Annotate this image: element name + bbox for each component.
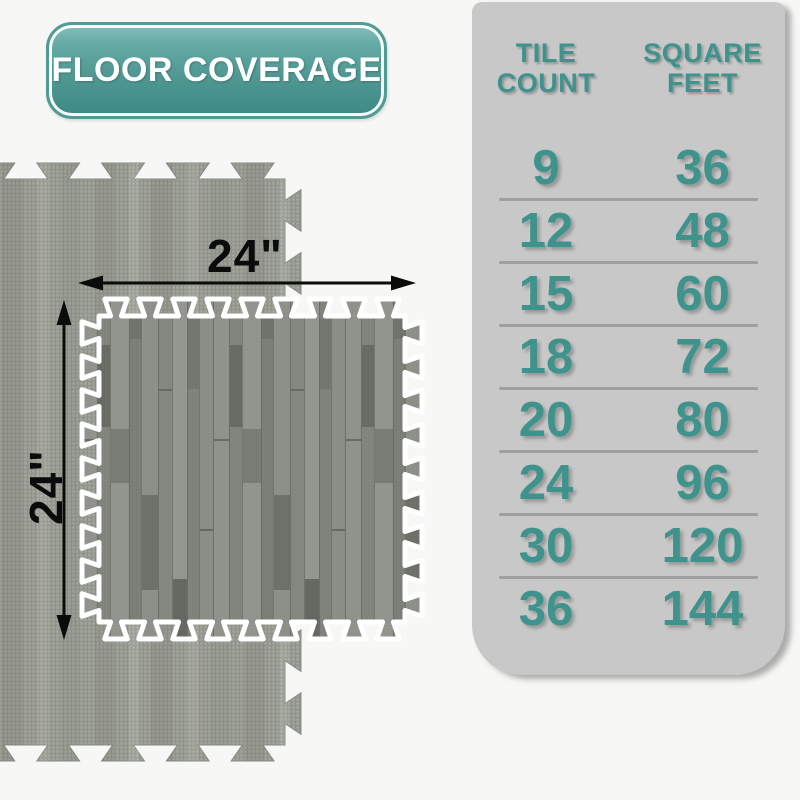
- width-label: 24": [175, 231, 315, 281]
- square-feet-cell: 72: [620, 329, 785, 385]
- tile-count-cell: 30: [472, 518, 620, 574]
- header-tile-count: TILE COUNT: [472, 38, 620, 98]
- floor-coverage-badge: FLOOR COVERAGE: [46, 22, 387, 119]
- square-feet-cell: 80: [620, 392, 785, 448]
- table-row: 15 60: [472, 262, 785, 325]
- tile-count-cell: 24: [472, 455, 620, 511]
- table-header: TILE COUNT SQUARE FEET: [472, 38, 785, 98]
- table-row: 36 144: [472, 577, 785, 640]
- table-row: 12 48: [472, 199, 785, 262]
- square-feet-cell: 48: [620, 203, 785, 259]
- page-background: 24" 24" FLOOR COVERAGE TILE COUNT SQUARE…: [0, 0, 800, 800]
- tile-count-cell: 9: [472, 140, 620, 196]
- tile-diagram: [0, 0, 470, 800]
- header-square-feet: SQUARE FEET: [620, 38, 785, 98]
- coverage-table-panel: TILE COUNT SQUARE FEET 9 36 12 48 15 60: [472, 2, 785, 675]
- square-feet-cell: 96: [620, 455, 785, 511]
- square-feet-cell: 120: [620, 518, 785, 574]
- table-row: 9 36: [472, 136, 785, 199]
- tile-count-cell: 15: [472, 266, 620, 322]
- square-feet-cell: 36: [620, 140, 785, 196]
- square-feet-cell: 60: [620, 266, 785, 322]
- front-tile: [82, 299, 422, 639]
- table-row: 30 120: [472, 514, 785, 577]
- badge-label: FLOOR COVERAGE: [51, 51, 381, 90]
- tile-count-cell: 36: [472, 581, 620, 637]
- table-row: 18 72: [472, 325, 785, 388]
- tile-count-cell: 12: [472, 203, 620, 259]
- height-label: 24": [20, 417, 72, 557]
- table-body: 9 36 12 48 15 60 18 72 20 80: [472, 136, 785, 640]
- table-row: 24 96: [472, 451, 785, 514]
- tile-count-cell: 18: [472, 329, 620, 385]
- table-row: 20 80: [472, 388, 785, 451]
- tile-count-cell: 20: [472, 392, 620, 448]
- square-feet-cell: 144: [620, 581, 785, 637]
